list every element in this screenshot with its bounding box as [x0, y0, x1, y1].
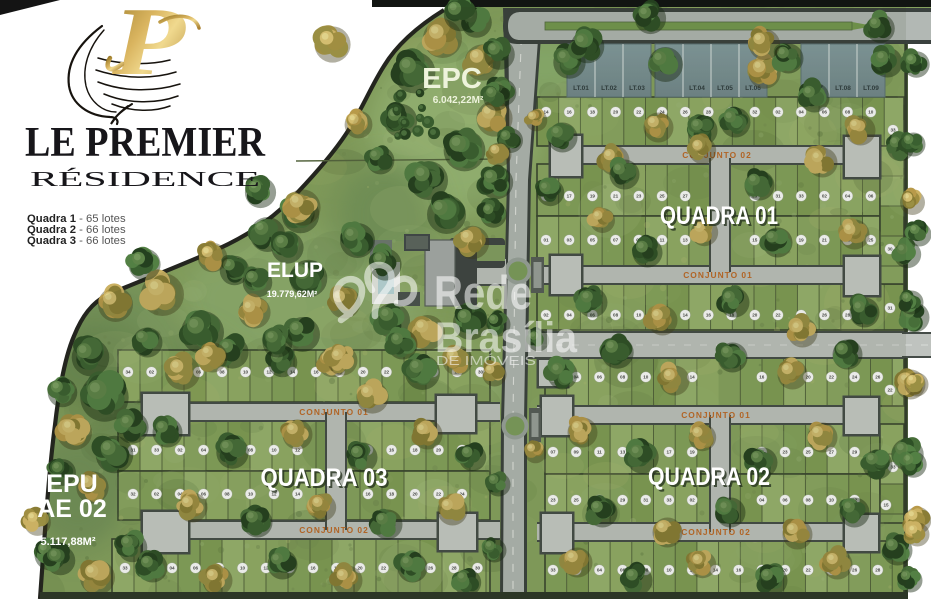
svg-text:RÉSIDENCE: RÉSIDENCE	[30, 167, 260, 191]
svg-text:ELUP: ELUP	[267, 259, 323, 282]
svg-text:QUADRA 03: QUADRA 03	[261, 464, 388, 492]
svg-text:LE PREMIER: LE PREMIER	[25, 120, 266, 166]
svg-text:P: P	[111, 0, 186, 96]
svg-text:Rede: Rede	[434, 266, 532, 319]
svg-text:Quadra 3 - 66 lotes: Quadra 3 - 66 lotes	[27, 235, 126, 247]
svg-text:QUADRA 01: QUADRA 01	[660, 202, 778, 230]
svg-text:19.779,62M²: 19.779,62M²	[267, 289, 318, 299]
svg-text:EPC: EPC	[422, 63, 482, 95]
svg-text:DE IMÓVEIS: DE IMÓVEIS	[436, 353, 536, 368]
svg-text:6.042,22M²: 6.042,22M²	[433, 95, 484, 106]
svg-text:EPU: EPU	[46, 470, 97, 498]
svg-text:AE 02: AE 02	[37, 495, 106, 523]
svg-text:QUADRA 02: QUADRA 02	[648, 463, 770, 491]
svg-text:5.117,88M²: 5.117,88M²	[40, 536, 95, 548]
